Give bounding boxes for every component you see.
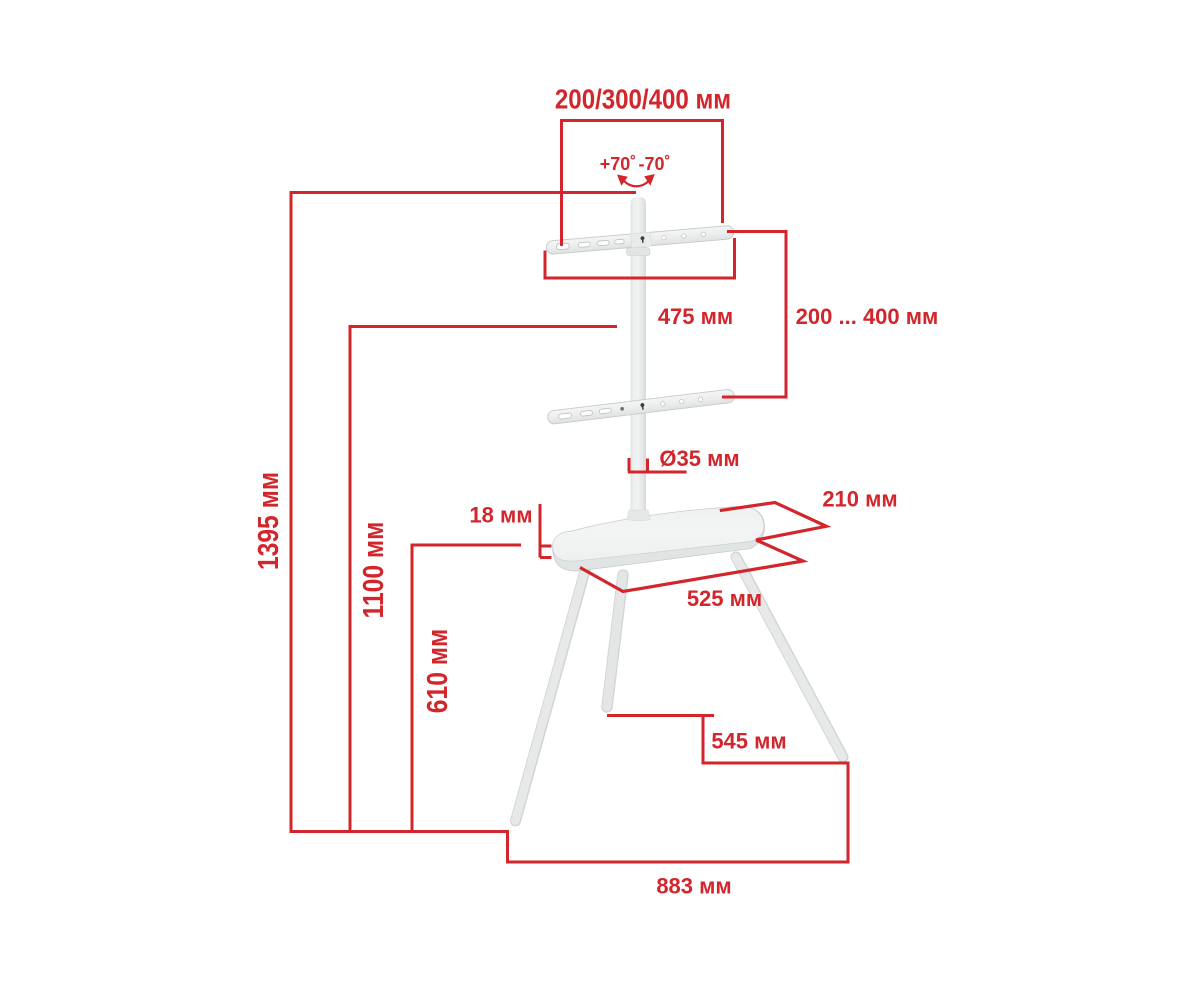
svg-text:-70˚: -70˚ bbox=[638, 154, 670, 174]
svg-text:545 мм: 545 мм bbox=[711, 729, 786, 754]
svg-text:883 мм: 883 мм bbox=[656, 874, 731, 899]
svg-text:200/300/400 мм: 200/300/400 мм bbox=[555, 83, 731, 115]
svg-text:475 мм: 475 мм bbox=[658, 304, 733, 329]
svg-text:1100 мм: 1100 мм bbox=[357, 522, 389, 619]
svg-text:200 ... 400 мм: 200 ... 400 мм bbox=[796, 304, 939, 329]
svg-text:Ø35 мм: Ø35 мм bbox=[659, 446, 739, 471]
svg-text:+70˚: +70˚ bbox=[600, 154, 637, 174]
svg-text:210 мм: 210 мм bbox=[822, 487, 897, 512]
svg-text:18 мм: 18 мм bbox=[469, 503, 532, 528]
svg-text:1395 мм: 1395 мм bbox=[252, 472, 284, 570]
svg-text:525 мм: 525 мм bbox=[687, 586, 762, 611]
svg-text:610 мм: 610 мм bbox=[421, 629, 453, 713]
